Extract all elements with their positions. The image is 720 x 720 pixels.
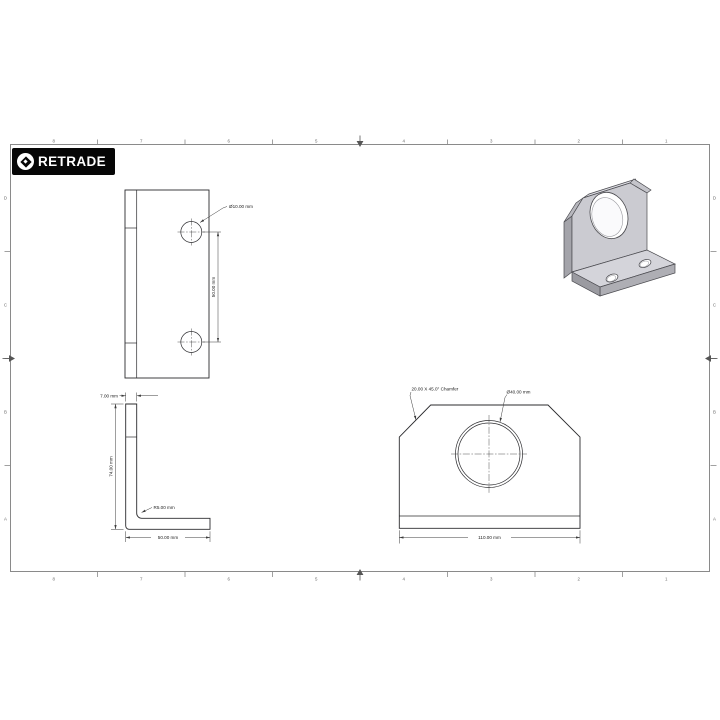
zone-number: 5: [315, 577, 318, 582]
zone-number: 1: [665, 139, 668, 144]
bore-diameter-callout: Ø40.00 mm: [500, 390, 531, 423]
hole-centerlines: [178, 219, 206, 356]
front-view: 20.00 X 45.0° Chamfer Ø40.00 mm 110.00 m…: [399, 387, 580, 544]
fillet-callout: R5.00 mm: [142, 505, 175, 513]
width-dimension: 110.00 mm: [399, 530, 580, 543]
bore-centerlines: [451, 415, 527, 493]
front-view-outline: [399, 405, 580, 528]
thickness-label: 7.00 mm: [100, 393, 118, 398]
fillet-label: R5.00 mm: [154, 505, 175, 510]
retrade-diamond-icon: [17, 153, 34, 170]
zone-number: 6: [227, 139, 230, 144]
hole-diameter-label: Ø10.00 mm: [229, 204, 253, 209]
width-label: 110.00 mm: [478, 535, 501, 540]
side-view: 7.00 mm 74.00 mm R5.00 mm 50.00 mm: [100, 393, 210, 543]
zone-number: 8: [52, 577, 55, 582]
top-view: Ø10.00 mm 50.00 mm: [125, 190, 253, 378]
zone-number: 2: [577, 577, 580, 582]
side-view-outline: [126, 404, 210, 529]
iso-plate-left-edge: [564, 216, 572, 278]
zone-letter: A: [713, 517, 716, 522]
zone-letter: B: [4, 410, 7, 415]
retrade-logo-text: RETRADE: [38, 148, 106, 175]
zone-letter: A: [4, 517, 7, 522]
zone-letter: B: [713, 410, 716, 415]
thickness-dimension: 7.00 mm: [100, 393, 158, 402]
drawing-sheet: 8 7 6 5 4 3 2 1 8 7 6 5 4 3 2 1 D C B A …: [0, 0, 720, 720]
height-dimension: 74.00 mm: [109, 404, 124, 529]
zone-number: 2: [577, 139, 580, 144]
isometric-view: [564, 179, 675, 296]
zone-number: 3: [490, 577, 493, 582]
zone-number: 7: [140, 577, 143, 582]
zone-number: 7: [140, 139, 143, 144]
retrade-logo: RETRADE: [12, 148, 115, 175]
hole-spacing-dimension: 50.00 mm: [203, 232, 221, 342]
hole-spacing-label: 50.00 mm: [211, 277, 216, 298]
cad-drawing-page: 8 7 6 5 4 3 2 1 8 7 6 5 4 3 2 1 D C B A …: [0, 0, 720, 720]
zone-letter: C: [4, 303, 7, 308]
height-label: 74.00 mm: [109, 456, 114, 477]
zone-number: 1: [665, 577, 668, 582]
zone-number: 4: [402, 577, 405, 582]
zone-number: 5: [315, 139, 318, 144]
hole-diameter-callout: Ø10.00 mm: [200, 204, 253, 223]
zone-number: 3: [490, 139, 493, 144]
chamfer-label: 20.00 X 45.0° Chamfer: [412, 387, 459, 392]
zone-number: 6: [227, 577, 230, 582]
flange-length-label: 50.00 mm: [158, 535, 179, 540]
zone-letter: D: [713, 196, 716, 201]
zone-number: 8: [52, 139, 55, 144]
chamfer-callout: 20.00 X 45.0° Chamfer: [410, 387, 459, 421]
zone-number: 4: [402, 139, 405, 144]
bore-diameter-label: Ø40.00 mm: [507, 390, 531, 395]
zone-letter: C: [713, 303, 716, 308]
flange-length-dimension: 50.00 mm: [126, 531, 210, 542]
zone-letter: D: [4, 196, 7, 201]
